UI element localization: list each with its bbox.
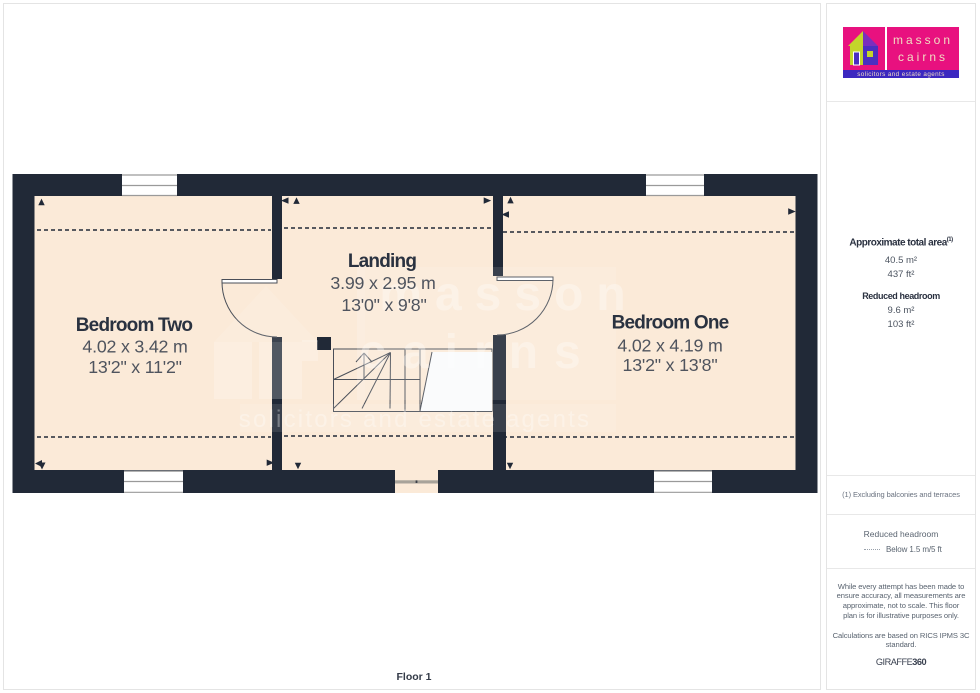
svg-text:cairns: cairns xyxy=(898,50,948,64)
svg-text:solicitors and estate agents: solicitors and estate agents xyxy=(239,406,591,433)
svg-text:13'2" x 13'8": 13'2" x 13'8" xyxy=(623,355,718,375)
svg-text:Bedroom One: Bedroom One xyxy=(612,313,729,334)
svg-text:4.02 x 4.19 m: 4.02 x 4.19 m xyxy=(617,336,722,356)
svg-text:cairns: cairns xyxy=(359,326,596,379)
svg-text:3.99 x 2.95 m: 3.99 x 2.95 m xyxy=(330,273,435,293)
svg-text:13'0" x 9'8": 13'0" x 9'8" xyxy=(341,295,426,315)
svg-text:Floor 1: Floor 1 xyxy=(396,671,431,683)
svg-text:solicitors and estate agents: solicitors and estate agents xyxy=(857,71,945,78)
svg-text:masson: masson xyxy=(893,33,953,47)
svg-text:Bedroom Two: Bedroom Two xyxy=(76,315,193,336)
svg-text:4.02 x 3.42 m: 4.02 x 3.42 m xyxy=(82,337,187,357)
svg-text:Landing: Landing xyxy=(348,251,416,272)
svg-text:13'2" x 11'2": 13'2" x 11'2" xyxy=(88,357,182,377)
